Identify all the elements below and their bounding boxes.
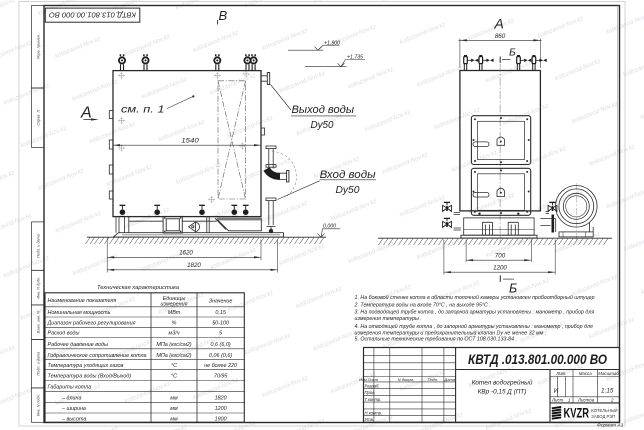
svg-text:ЗАВОД РЭП: ЗАВОД РЭП	[591, 414, 615, 419]
svg-text:N докум.: N докум.	[398, 377, 414, 382]
svg-text:измерения температуры и предох: измерения температуры и предохранительны…	[355, 329, 547, 336]
svg-text:– высота: – высота	[61, 416, 86, 422]
svg-text:мм: мм	[170, 406, 178, 412]
svg-text:Номинальная мощность: Номинальная мощность	[48, 310, 111, 316]
svg-text:°С: °С	[171, 363, 177, 369]
svg-text:МВт: МВт	[168, 310, 181, 316]
svg-text:Подп.: Подп.	[428, 377, 439, 382]
svg-text:измерения: измерения	[161, 302, 188, 308]
svg-text:+1.735: +1.735	[347, 55, 363, 61]
svg-text:Температура уходящих газов: Температура уходящих газов	[48, 363, 124, 369]
svg-text:МПа (кгс/см2): МПа (кгс/см2)	[156, 353, 191, 359]
svg-text:Рабочее давление воды: Рабочее давление воды	[48, 342, 108, 348]
svg-text:Диапазон рабочего регулировани: Диапазон рабочего регулирования	[47, 321, 136, 327]
svg-text:А: А	[80, 104, 92, 121]
svg-text:Формат А3: Формат А3	[597, 422, 624, 428]
svg-text:%: %	[172, 321, 177, 327]
svg-text:1200: 1200	[493, 265, 507, 272]
svg-text:КВТД.013.801.00.000 ВО: КВТД.013.801.00.000 ВО	[48, 11, 136, 18]
svg-text:Габариты котла: Габариты котла	[48, 385, 92, 391]
svg-text:Б: Б	[509, 46, 516, 58]
svg-text:КОТЕЛЬНЫЙ: КОТЕЛЬНЫЙ	[591, 408, 617, 413]
svg-text:0,15: 0,15	[215, 310, 226, 316]
svg-text:Лист: Лист	[551, 397, 564, 402]
svg-text:1200: 1200	[215, 406, 227, 412]
svg-text:Изм Лист: Изм Лист	[359, 377, 378, 382]
svg-text:Разраб.: Разраб.	[365, 383, 380, 388]
svg-text:Гидравлическое сопротивление к: Гидравлическое сопротивление котла	[48, 353, 147, 359]
svg-text:м3/ч: м3/ч	[169, 331, 180, 337]
svg-text:KVZR: KVZR	[564, 405, 590, 420]
svg-text:мм: мм	[170, 416, 178, 422]
svg-text:860: 860	[495, 33, 506, 40]
svg-text:70/95: 70/95	[214, 374, 228, 380]
svg-text:1540: 1540	[181, 138, 199, 145]
svg-text:2. Температура воды на входе: 2. Температура воды на входе 70°С , на в…	[354, 302, 491, 308]
svg-text:2: 2	[610, 397, 614, 402]
svg-text:не более 220: не более 220	[204, 363, 237, 369]
svg-text:4. На отводящей трубе котла ,: 4. На отводящей трубе котла , до запорно…	[355, 323, 593, 330]
svg-text:Подп. и дата: Подп. и дата	[36, 352, 40, 376]
svg-text:Расход воды: Расход воды	[48, 331, 80, 337]
svg-text:Лит.: Лит.	[555, 371, 566, 376]
svg-text:Взам. инв. N: Взам. инв. N	[36, 311, 40, 333]
svg-text:Инв. N подл.: Инв. N подл.	[36, 394, 40, 416]
svg-text:– ширина: – ширина	[61, 406, 86, 412]
svg-text:Dy50: Dy50	[336, 185, 360, 196]
svg-text:700: 700	[495, 253, 506, 260]
svg-text:Б: Б	[509, 281, 517, 295]
svg-text:Т.контр.: Т.контр.	[365, 397, 382, 402]
svg-text:0.000: 0.000	[323, 224, 336, 230]
svg-text:В: В	[219, 8, 228, 23]
svg-text:Температура воды (Вход/Выход): Температура воды (Вход/Выход)	[48, 374, 132, 380]
svg-text:50-100: 50-100	[212, 321, 229, 327]
svg-text:Котел водогрейный: Котел водогрейный	[472, 379, 533, 387]
svg-text:Утв.: Утв.	[365, 417, 375, 422]
svg-text:Выход воды: Выход воды	[292, 104, 355, 116]
svg-text:+1.900: +1.900	[324, 41, 340, 47]
svg-text:Инв. N дубл.: Инв. N дубл.	[36, 277, 40, 299]
svg-text:А: А	[494, 15, 504, 31]
svg-text:5. Остальные технические треб: 5. Остальные технические требования по О…	[355, 337, 517, 343]
svg-text:Подп. и дата: Подп. и дата	[36, 234, 40, 258]
svg-text:КВр -0,15 Д (ПТ): КВр -0,15 Д (ПТ)	[478, 388, 527, 395]
svg-text:Н.контр.: Н.контр.	[365, 410, 383, 415]
svg-text:Листов: Листов	[577, 397, 595, 402]
svg-text:измерения температуры .: измерения температуры .	[355, 316, 422, 322]
svg-text:Справ. N: Справ. N	[36, 109, 40, 125]
svg-text:И: И	[554, 387, 559, 394]
svg-text:Dy50: Dy50	[311, 120, 334, 131]
svg-text:0,06 (0,6): 0,06 (0,6)	[209, 353, 232, 359]
svg-text:3. На подводящей трубе котла: 3. На подводящей трубе котла , до запорн…	[355, 309, 595, 316]
svg-text:см. п. 1: см. п. 1	[121, 104, 165, 116]
svg-text:Масштаб: Масштаб	[598, 371, 619, 376]
svg-text:Вход воды: Вход воды	[320, 169, 376, 181]
svg-text:Наименование показателя: Наименование показателя	[48, 298, 117, 304]
svg-text:Пров.: Пров.	[365, 390, 376, 395]
svg-text:0,6 (6,0): 0,6 (6,0)	[211, 342, 231, 348]
svg-text:1820: 1820	[215, 396, 227, 402]
svg-text:°С: °С	[171, 374, 177, 380]
svg-text:1620: 1620	[179, 250, 193, 257]
svg-text:1. На боковой стенке котла в: 1. На боковой стенке котла в области топ…	[355, 294, 595, 301]
svg-text:КВТД .013.801.00.000 ВО: КВТД .013.801.00.000 ВО	[468, 352, 607, 367]
svg-text:Дата: Дата	[443, 377, 455, 382]
svg-text:– длина: – длина	[61, 396, 81, 402]
svg-text:МПа (кгс/см2): МПа (кгс/см2)	[156, 342, 191, 348]
svg-text:1900: 1900	[215, 416, 227, 422]
svg-text:Масса: Масса	[579, 371, 593, 376]
svg-text:Значение: Значение	[209, 299, 233, 305]
svg-text:Техническая характеристика: Техническая характеристика	[97, 285, 180, 291]
svg-text:1:15: 1:15	[601, 387, 614, 394]
svg-text:1820: 1820	[187, 262, 201, 269]
svg-text:Перв. примен.: Перв. примен.	[36, 34, 40, 59]
svg-text:мм: мм	[170, 396, 178, 402]
